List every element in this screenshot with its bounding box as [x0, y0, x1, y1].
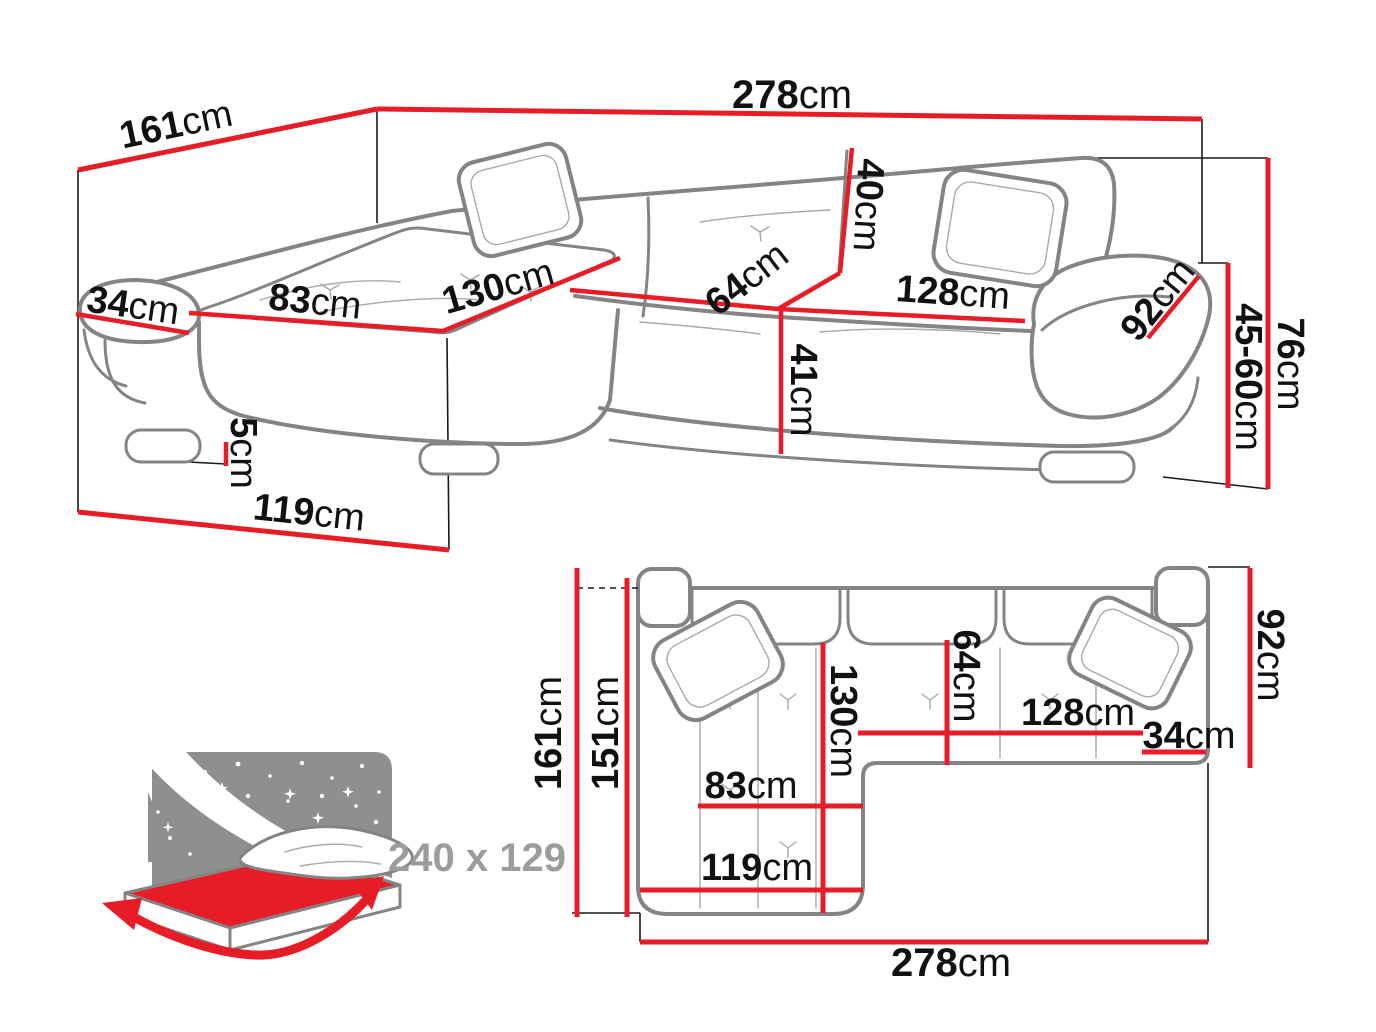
height-bottom-tick: [1163, 477, 1268, 489]
backrest-wrinkle-1: [700, 210, 830, 222]
pillow-left: [455, 140, 585, 260]
dim-label-leg-height: 5cm: [222, 417, 264, 489]
plan-dim-label-total-width: 278cm: [891, 941, 1011, 985]
dim-line-fold-depth: [778, 273, 840, 309]
unfold-arrow-head-left: [102, 898, 142, 930]
dimension-diagram-page: 278cm 161cm 34cm 83cm 130cm 40cm 64cm 12…: [0, 0, 1376, 1032]
seat-wrinkle-2: [640, 322, 760, 334]
pillow-right: [931, 167, 1070, 289]
sofa-foot-left: [126, 430, 200, 462]
chaise-left-skirt: [105, 340, 145, 403]
plan-dim-label-total-depth: 161cm: [528, 676, 570, 790]
bed-size-label: 240 x 129: [388, 836, 566, 880]
plan-left-armrest-block: [638, 569, 690, 626]
dim-label-seat-height-range: 45-60cm: [1227, 303, 1269, 451]
sofa-dimension-diagram: 278cm 161cm 34cm 83cm 130cm 40cm 64cm 12…: [0, 0, 1376, 1032]
dim-label-seat-height: 41cm: [782, 344, 824, 437]
plan-right-armrest-block: [1156, 568, 1208, 625]
plan-dim-label-armrest-length: 92cm: [1249, 609, 1291, 702]
plan-view: 161cm 151cm 130cm 64cm 128cm 34cm 92cm 8…: [528, 567, 1291, 985]
sofa-foot-right: [1040, 452, 1134, 482]
perspective-view: 278cm 161cm 34cm 83cm 130cm 40cm 64cm 12…: [76, 73, 1311, 550]
dim-label-total-height: 76cm: [1269, 318, 1311, 411]
dim-label-backrest-height: 40cm: [845, 157, 892, 252]
dim-label-total-width: 278cm: [732, 73, 852, 117]
plan-dim-label-fold-depth: 64cm: [945, 630, 987, 723]
plan-dim-label-seat-width: 128cm: [1021, 692, 1135, 734]
dim-label-seat-width: 128cm: [895, 268, 1012, 318]
plan-dim-label-chaise-seat-width: 83cm: [705, 765, 798, 807]
sofa-foot-center-left: [420, 444, 498, 474]
plan-dim-label-chaise-floor-length: 119cm: [701, 847, 813, 889]
plan-dim-label-armrest-width: 34cm: [1143, 715, 1236, 757]
pillow-right-outline: [931, 167, 1070, 289]
main-backrest-right-edge: [1082, 158, 1114, 264]
sleeping-function-icon: 240 x 129: [102, 752, 566, 955]
plan-dim-label-chaise-length: 130cm: [822, 664, 864, 778]
main-base-right-side: [1172, 378, 1198, 428]
plan-dim-label-chaise-depth: 151cm: [585, 676, 627, 790]
